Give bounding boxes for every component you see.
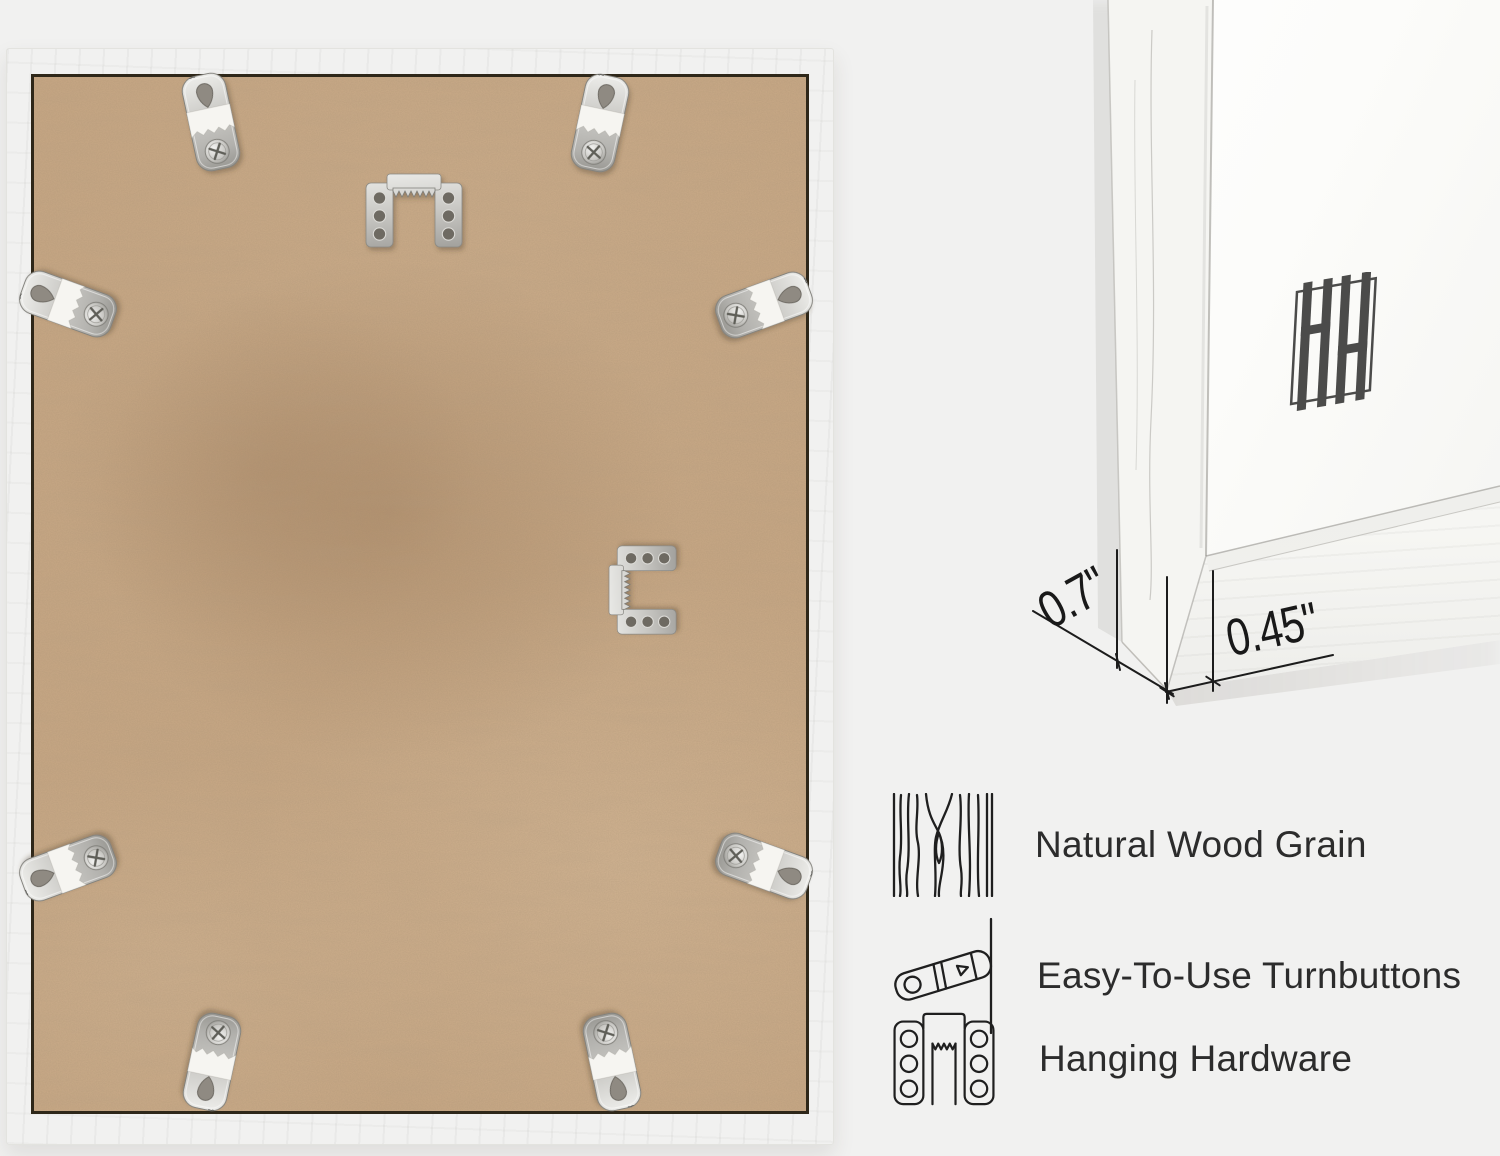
feature-label: Easy-To-Use Turnbuttons [1037, 955, 1461, 997]
sawtooth-hanger-middle [609, 546, 676, 634]
turnbutton-top-left [180, 70, 243, 173]
product-infographic: 0.7" 0.45" Natural Wood Grain [0, 0, 1500, 1156]
turnbutton-bottom-left [181, 1010, 244, 1113]
turnbutton-bottom-right [581, 1010, 644, 1113]
feature-row-wood-grain: Natural Wood Grain [890, 793, 1367, 897]
turnbutton-left-upper [15, 267, 120, 341]
turnbutton-left-lower [15, 831, 120, 905]
feature-label: Hanging Hardware [1039, 1038, 1352, 1080]
turnbutton-top-right [569, 71, 632, 174]
sawtooth-hanger-top [366, 174, 462, 247]
feature-label: Natural Wood Grain [1035, 824, 1367, 866]
frame-hardware-layer [6, 48, 832, 1143]
hanging-hardware-icon [890, 1011, 998, 1107]
wood-grain-icon [890, 793, 994, 897]
turnbutton-right-upper [711, 268, 816, 342]
feature-row-hanging-hardware: Hanging Hardware [890, 1011, 1352, 1107]
turnbutton-right-lower [711, 829, 816, 903]
